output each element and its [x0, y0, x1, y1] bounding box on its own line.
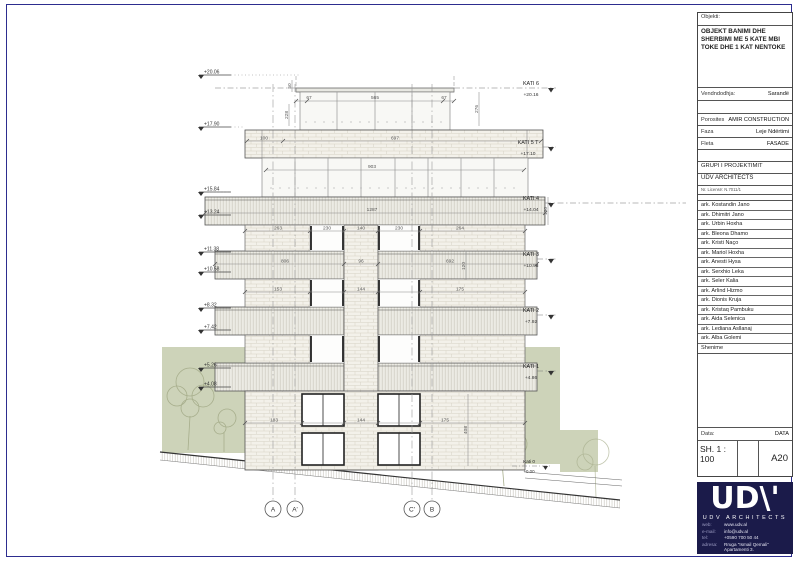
architect-row: ark. Urbin Hoxha — [698, 220, 792, 230]
spacer-row — [698, 150, 792, 162]
architect-row: ark. Bleona Dhamo — [698, 230, 792, 240]
spacer-row — [698, 195, 792, 201]
phase-label: Faza — [701, 129, 713, 135]
architect-row: ark. Dhimitri Jano — [698, 211, 792, 221]
objekti-label: Objekti: — [698, 13, 792, 26]
logo-contact-row: adresa: Rruga "Ismail Qemali" Apartament… — [702, 542, 788, 553]
udv-logo-wordmark: UD\' — [702, 484, 788, 514]
contact-label: e-mail: — [702, 529, 724, 535]
drawing-sheet: { "title_block": { "objekti_label": "Obj… — [0, 0, 800, 563]
udv-logo-name: UDV ARCHITECTS — [702, 515, 788, 521]
location-value: Sarandë — [768, 91, 789, 97]
phase-value: Leje Ndërtimi — [756, 129, 789, 135]
date-label: Data: — [701, 431, 714, 437]
architect-row: ark. Anesti Hysa — [698, 258, 792, 268]
scale-middle-cell — [738, 441, 759, 476]
architect-row: ark. Kostandin Jano — [698, 201, 792, 211]
notes-area — [698, 354, 792, 428]
objekti-label-text: Objekti: — [701, 14, 720, 20]
architect-row: ark. Arlind Hizmo — [698, 287, 792, 297]
project-title: OBJEKT BANIMI DHE SHERBIMI ME 5 KATE MBI… — [698, 26, 792, 88]
architect-row: ark. Mariol Hoxha — [698, 249, 792, 259]
logo-contact-row: e-mail: info@udv.al — [702, 529, 788, 535]
udv-logo-block: UD\' UDV ARCHITECTS web: www.udv.al e-ma… — [697, 482, 793, 554]
sheet-type-label: Fleta — [701, 141, 713, 147]
client-row: Porosites AMIR CONSTRUCTION — [698, 114, 792, 126]
studio-name: UDV ARCHITECTS — [698, 174, 792, 186]
sheet-border — [6, 4, 792, 557]
architect-row: ark. Dionis Kruja — [698, 296, 792, 306]
title-block: Objekti: OBJEKT BANIMI DHE SHERBIMI ME 5… — [697, 12, 793, 477]
design-group-label: GRUPI I PROJEKTIMIT — [698, 162, 792, 174]
contact-value: www.udv.al — [724, 522, 788, 528]
spacer-row — [698, 101, 792, 114]
contact-label: web: — [702, 522, 724, 528]
date-value: DATA — [775, 431, 789, 437]
client-label: Porosites — [701, 117, 724, 123]
architect-row: ark. Kristaq Pambuku — [698, 306, 792, 316]
architect-row: ark. Serxhio Leka — [698, 268, 792, 278]
architect-row: ark. Lediana Asllanaj — [698, 325, 792, 335]
architect-row: ark. Seler Kalia — [698, 277, 792, 287]
architect-row: ark. Kristi Naço — [698, 239, 792, 249]
architect-row: ark. Alba Golemi — [698, 334, 792, 344]
phase-row: Faza Leje Ndërtimi — [698, 126, 792, 138]
architect-row: ark. Aida Selenica — [698, 315, 792, 325]
contact-value: Rruga "Ismail Qemali" Apartamenti 3. — [724, 542, 788, 553]
scale-sheet-row: SH. 1 : 100 A20 — [698, 441, 792, 476]
date-row: Data: DATA — [698, 428, 792, 441]
sheet-number: A20 — [759, 441, 792, 476]
notes-label: Shenime — [698, 344, 792, 354]
contact-label: adresa: — [702, 542, 724, 553]
contact-value: +0590 700 50 44 — [724, 535, 788, 541]
scale-value: SH. 1 : 100 — [698, 441, 738, 476]
contact-label: tel: — [702, 535, 724, 541]
logo-contact-row: web: www.udv.al — [702, 522, 788, 528]
sheet-type-value: FASADE — [767, 141, 789, 147]
client-value: AMIR CONSTRUCTION — [728, 117, 789, 123]
location-row: Vendndodhja: Sarandë — [698, 88, 792, 101]
contact-value: info@udv.al — [724, 529, 788, 535]
logo-contact-row: tel: +0590 700 50 44 — [702, 535, 788, 541]
license-number: Nr. Licensë: N.7011/1 — [698, 186, 792, 195]
sheet-type-row: Fleta FASADE — [698, 138, 792, 150]
location-label: Vendndodhja: — [701, 91, 735, 97]
